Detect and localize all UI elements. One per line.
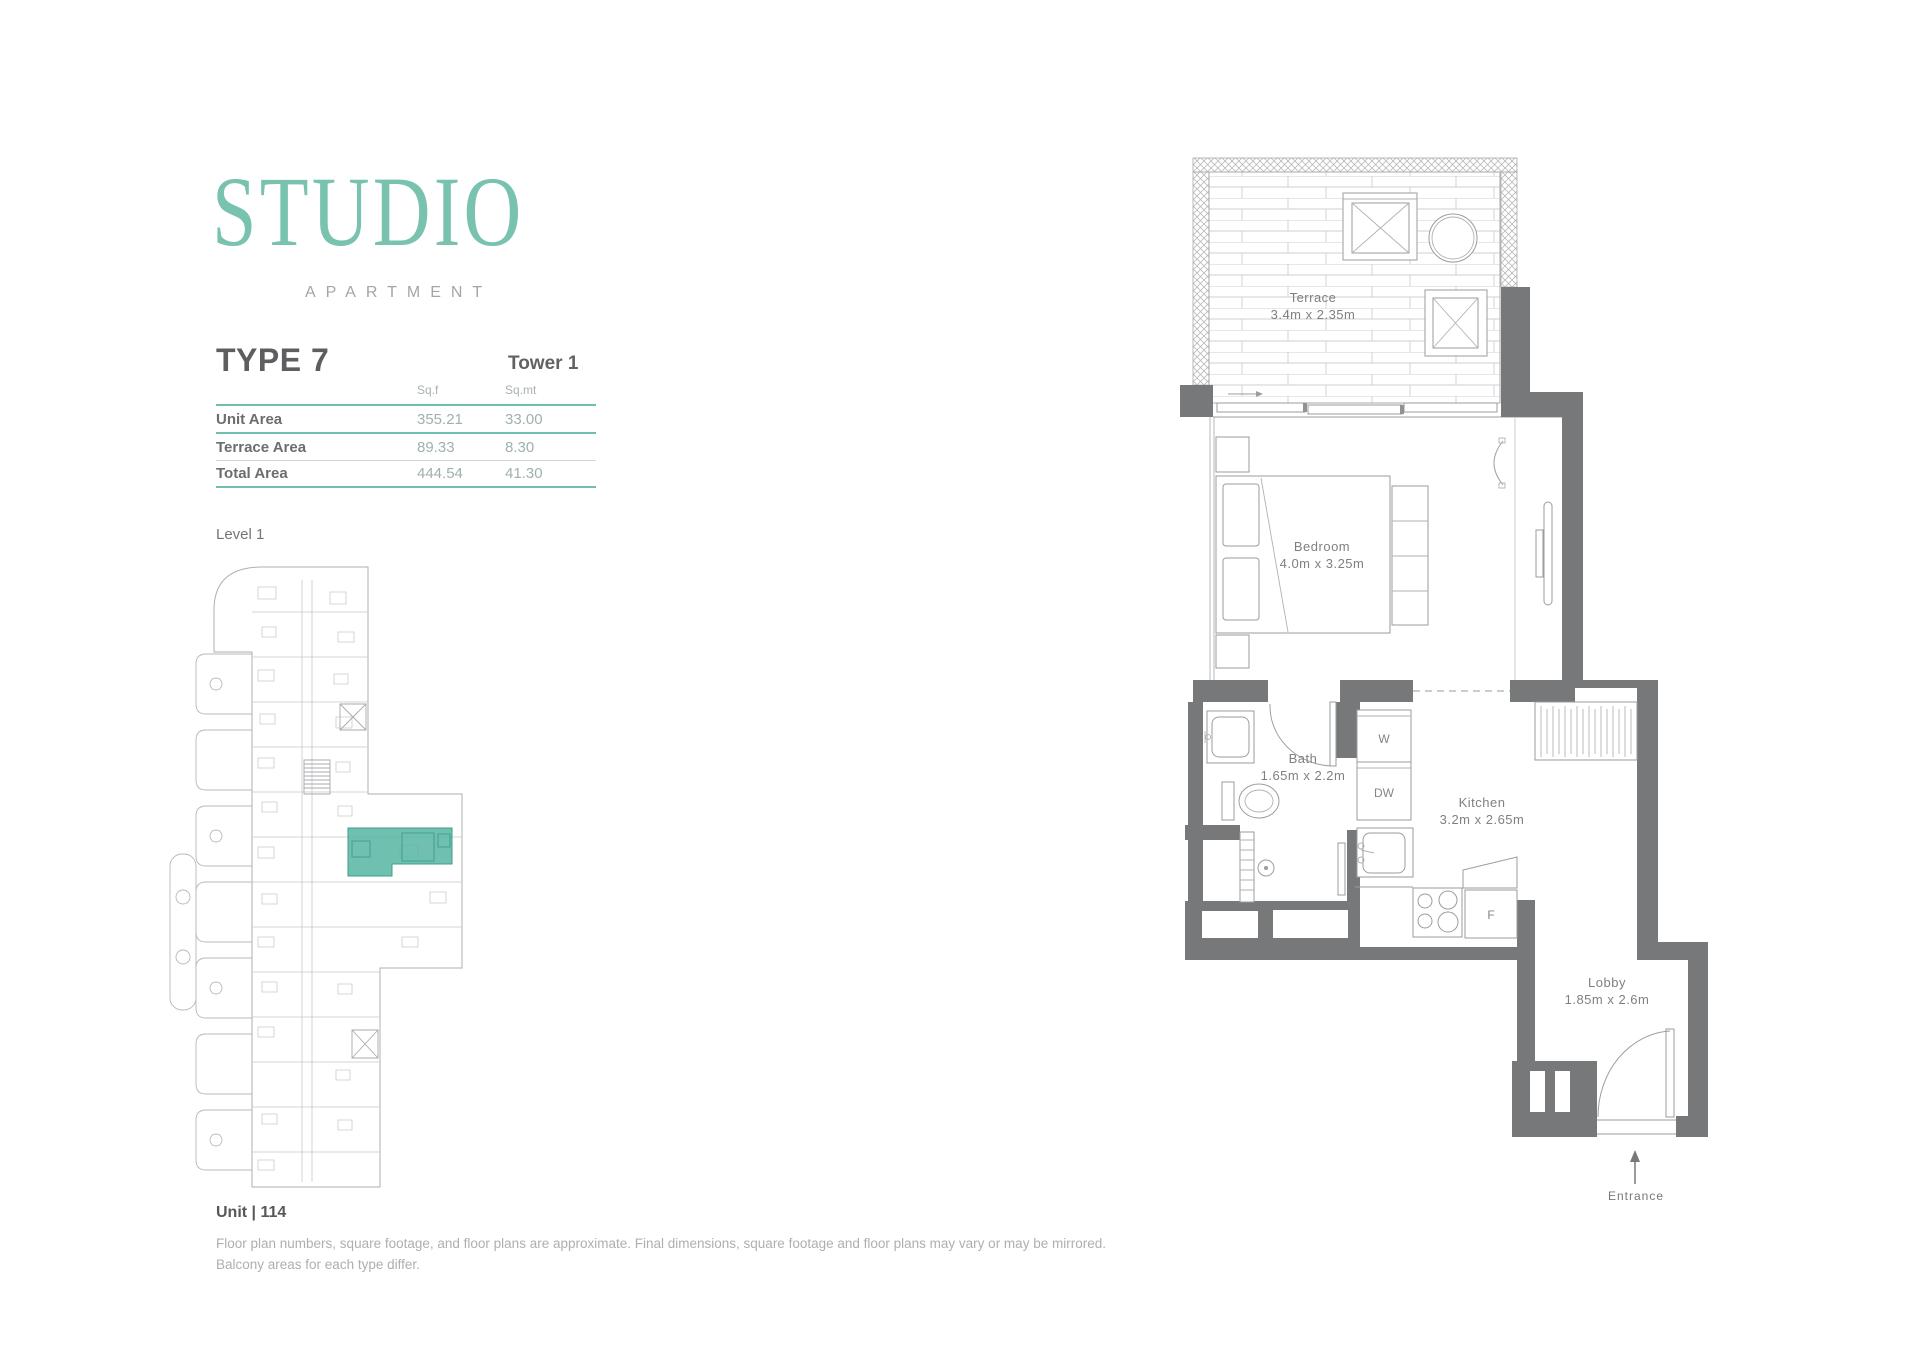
room-label-kitchen: Kitchen (1459, 795, 1506, 810)
washer-label: W (1378, 732, 1390, 746)
terrace-chair2-icon (1425, 290, 1487, 356)
tower-label: Tower 1 (508, 353, 578, 375)
unit-type-title: TYPE 7 (216, 342, 329, 379)
nightstand-icon (1216, 635, 1249, 668)
level-label: Level 1 (216, 526, 264, 543)
entrance-arrow-icon (1630, 1150, 1640, 1184)
floor-plan-page: STUDIO APARTMENT TYPE 7 Tower 1 Sq.f Sq.… (0, 0, 1922, 1360)
terrace-chair-icon (1343, 193, 1417, 260)
counter-icon (1463, 857, 1517, 888)
row-label: Total Area (216, 465, 417, 482)
entrance-door-icon (1597, 1029, 1676, 1134)
row-sqmt: 8.30 (505, 439, 596, 456)
hatch-edge-left (1193, 172, 1209, 385)
terrace: Terrace 3.4m x 2.35m (1193, 158, 1517, 403)
terrace-table-icon (1429, 214, 1477, 262)
row-label: Terrace Area (216, 439, 417, 456)
floor-plan: Terrace 3.4m x 2.35m (1140, 140, 1760, 1230)
shower-icon (1240, 832, 1345, 902)
unit-number-label: Unit | 114 (216, 1204, 286, 1222)
room-dims-bedroom: 4.0m x 3.25m (1280, 556, 1365, 571)
dishwasher-label: DW (1374, 786, 1395, 800)
disclaimer: Floor plan numbers, square footage, and … (216, 1233, 1146, 1275)
disclaimer-line2: Balcony areas for each type differ. (216, 1254, 1146, 1275)
room-label-bedroom: Bedroom (1294, 539, 1350, 554)
room-label-lobby: Lobby (1588, 975, 1626, 990)
entrance-label: Entrance (1608, 1189, 1664, 1203)
room-dims-kitchen: 3.2m x 2.65m (1440, 812, 1525, 827)
dishwasher-unit: DW (1357, 762, 1411, 820)
tv-unit-icon (1536, 502, 1552, 605)
column-header-sqmt: Sq.mt (505, 383, 596, 404)
bench-icon (1392, 486, 1428, 625)
nightstand-icon (1216, 437, 1249, 472)
table-row: Total Area 444.54 41.30 (216, 460, 596, 488)
balcony-outlines (170, 654, 252, 1170)
row-sqf: 355.21 (417, 411, 505, 428)
row-label: Unit Area (216, 411, 417, 428)
room-dims-terrace: 3.4m x 2.35m (1271, 307, 1356, 322)
row-sqf: 444.54 (417, 465, 505, 482)
room-dims-lobby: 1.85m x 2.6m (1565, 992, 1650, 1007)
room-dims-bath: 1.65m x 2.2m (1261, 768, 1346, 783)
hob-icon (1413, 888, 1462, 937)
bedroom: Bedroom 4.0m x 3.25m (1210, 417, 1552, 680)
washer-unit: W (1357, 710, 1411, 762)
bed-icon (1216, 476, 1390, 633)
vanity-sink-icon (1205, 711, 1254, 763)
curtain-icon (1494, 438, 1505, 488)
logo-apartment: APARTMENT (305, 284, 492, 302)
row-sqmt: 33.00 (505, 411, 596, 428)
table-row: Terrace Area 89.33 8.30 (216, 432, 596, 460)
area-table-header: Sq.f Sq.mt (216, 383, 596, 404)
bathroom: Bath 1.65m x 2.2m (1205, 702, 1345, 902)
key-plan (150, 552, 510, 1212)
fridge-label: F (1487, 908, 1494, 922)
row-sqmt: 41.30 (505, 465, 596, 482)
kitchen: W DW (1355, 702, 1637, 938)
logo-studio: STUDIO (212, 162, 525, 262)
hatch-edge-top (1193, 158, 1517, 172)
hatch-edge-right (1501, 172, 1517, 287)
kitchen-sink-icon (1357, 828, 1413, 877)
room-label-bath: Bath (1289, 751, 1318, 766)
disclaimer-line1: Floor plan numbers, square footage, and … (216, 1233, 1146, 1254)
area-table: Sq.f Sq.mt Unit Area 355.21 33.00 Terrac… (216, 383, 596, 488)
header-spacer (216, 383, 417, 404)
room-label-terrace: Terrace (1290, 290, 1337, 305)
column-header-sqf: Sq.f (417, 383, 505, 404)
fridge-unit: F (1465, 890, 1517, 938)
closet-icon (1535, 702, 1637, 760)
row-sqf: 89.33 (417, 439, 505, 456)
table-row: Unit Area 355.21 33.00 (216, 404, 596, 432)
toilet-icon (1222, 782, 1279, 820)
